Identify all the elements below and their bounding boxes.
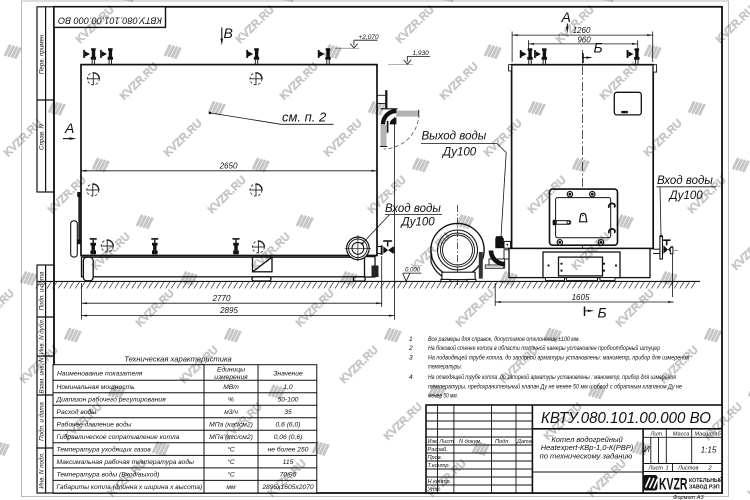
svg-text:см. п. 2: см. п. 2 — [282, 110, 327, 125]
svg-text:Дата: Дата — [516, 439, 532, 445]
svg-text:Подп. и дата: Подп. и дата — [39, 402, 46, 441]
svg-text:КОТЕЛЬНЫЙ: КОТЕЛЬНЫЙ — [689, 476, 723, 484]
svg-text:Перв. примен.: Перв. примен. — [39, 33, 46, 74]
svg-text:Инв. N подл.: Инв. N подл. — [39, 452, 46, 488]
svg-text:измерения: измерения — [214, 374, 248, 381]
svg-text:35: 35 — [284, 409, 292, 416]
svg-text:%: % — [228, 396, 234, 403]
svg-text:1: 1 — [666, 465, 669, 471]
svg-text:2: 2 — [408, 345, 413, 352]
svg-text:Формат А3: Формат А3 — [673, 495, 704, 500]
svg-text:Лит.: Лит. — [650, 432, 664, 438]
svg-text:Б: Б — [594, 40, 603, 56]
svg-text:не более 250: не более 250 — [268, 445, 309, 453]
svg-text:0,06 (0,6): 0,06 (0,6) — [274, 434, 303, 441]
svg-text:Масса: Масса — [673, 432, 690, 438]
svg-text:На боковой стенке котла в обла: На боковой стенке котла в области топочн… — [428, 344, 660, 352]
svg-text:Наименование показателя: Наименование показателя — [57, 371, 143, 378]
svg-text:Б: Б — [598, 305, 607, 321]
svg-text:Вход воды: Вход воды — [657, 175, 713, 187]
svg-text:Вход воды: Вход воды — [385, 203, 441, 215]
svg-text:2650: 2650 — [219, 161, 238, 170]
svg-text:Пров.: Пров. — [428, 455, 443, 461]
svg-text:0,6 (6,0): 0,6 (6,0) — [276, 421, 301, 428]
svg-text:мм: мм — [226, 484, 236, 491]
svg-text:Лист: Лист — [648, 465, 664, 471]
svg-text:МВт: МВт — [223, 384, 239, 391]
svg-text:°С: °С — [227, 445, 235, 453]
svg-text:Изм Лист: Изм Лист — [428, 439, 455, 445]
svg-text:4: 4 — [409, 374, 413, 381]
svg-text:Инв. N дубл.: Инв. N дубл. — [39, 319, 46, 355]
svg-text:°С: °С — [227, 471, 235, 479]
svg-text:Разраб.: Разраб. — [428, 447, 448, 453]
svg-text:Единицы: Единицы — [217, 366, 245, 374]
svg-text:Т.контр.: Т.контр. — [428, 463, 451, 469]
svg-text:Температура уходящих газов: Температура уходящих газов — [57, 445, 152, 453]
svg-text:Подп. и дата: Подп. и дата — [39, 271, 46, 310]
svg-text:А: А — [64, 120, 74, 136]
svg-text:Выход воды: Выход воды — [422, 131, 487, 143]
svg-text:Подп.: Подп. — [495, 439, 510, 445]
svg-text:1: 1 — [409, 336, 413, 343]
svg-text:960: 960 — [577, 35, 591, 44]
svg-text:Ду100: Ду100 — [400, 217, 436, 229]
svg-text:м3/ч: м3/ч — [224, 409, 238, 416]
svg-text:ЗАВОД РЭП: ЗАВОД РЭП — [689, 484, 720, 490]
svg-text:Ду100: Ду100 — [441, 147, 477, 159]
svg-text:Листов: Листов — [677, 465, 698, 471]
svg-text:2895: 2895 — [219, 306, 238, 315]
svg-text:На подводящей трубе котла, д: На подводящей трубе котла, до запорной а… — [428, 354, 689, 362]
svg-text:Диапазон рабочего регулировани: Диапазон рабочего регулирования — [56, 395, 167, 403]
svg-text:Значение: Значение — [273, 371, 303, 378]
svg-text:В: В — [224, 25, 233, 41]
svg-text:1605: 1605 — [572, 293, 590, 302]
svg-text:Максимальная рабочая температу: Максимальная рабочая температура воды — [57, 458, 195, 466]
svg-text:°С: °С — [227, 458, 235, 466]
svg-text:2770: 2770 — [212, 294, 231, 303]
svg-text:3: 3 — [409, 355, 413, 362]
svg-text:+2,070: +2,070 — [359, 34, 379, 41]
svg-text:температуры, предохранительный: температуры, предохранительный клапан Ду… — [428, 383, 682, 391]
svg-text:температуры.: температуры. — [428, 364, 462, 371]
svg-text:1,930: 1,930 — [413, 50, 430, 57]
svg-text:KVZR: KVZR — [659, 475, 688, 494]
svg-text:На отводящей трубе котла ,до з: На отводящей трубе котла ,до запорной ар… — [428, 373, 676, 381]
svg-text:1:15: 1:15 — [701, 446, 717, 455]
svg-text:Температура воды (Вход/выход): Температура воды (Вход/выход) — [57, 471, 160, 479]
